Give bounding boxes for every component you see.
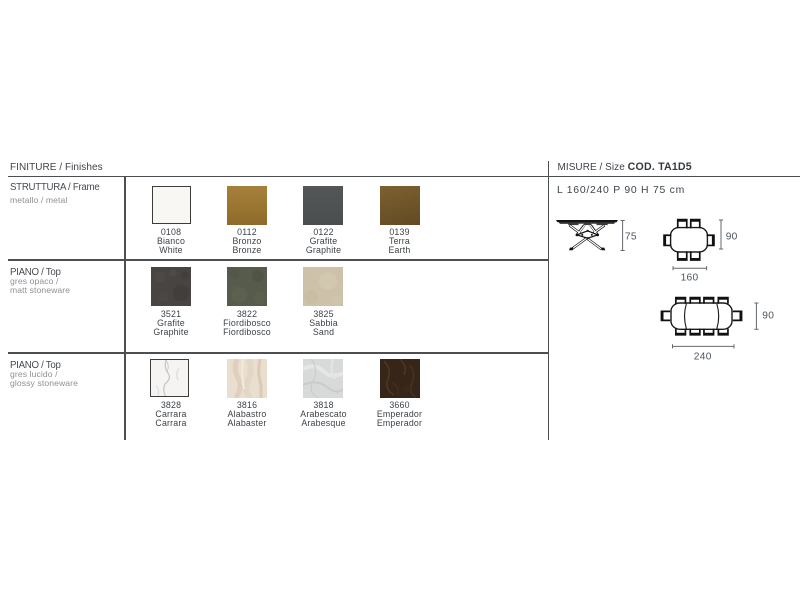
- svg-text:90: 90: [726, 232, 738, 243]
- svg-text:240: 240: [694, 352, 712, 363]
- svg-text:75: 75: [625, 232, 637, 243]
- svg-text:90: 90: [762, 311, 774, 322]
- svg-text:160: 160: [681, 273, 699, 284]
